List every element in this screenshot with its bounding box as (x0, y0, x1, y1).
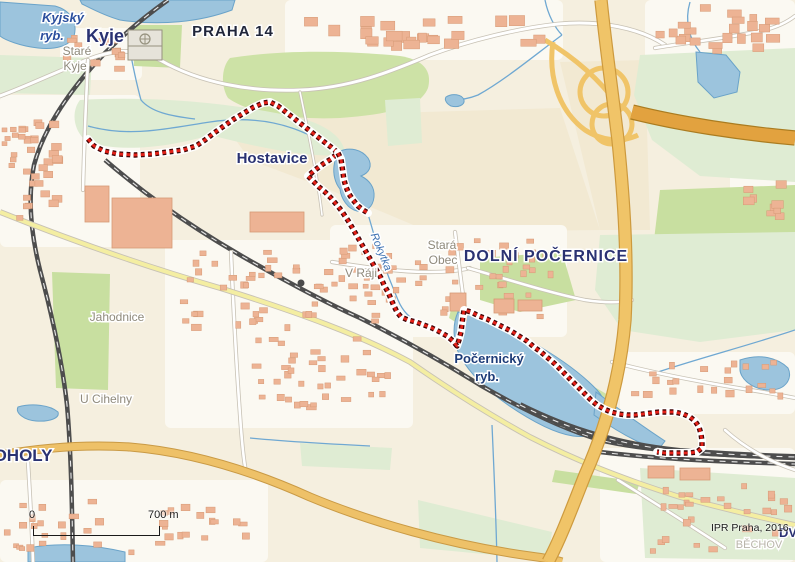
large-building (112, 198, 172, 248)
building (728, 10, 742, 18)
building (259, 273, 265, 278)
building (309, 361, 317, 365)
building (503, 266, 508, 272)
building (744, 509, 750, 514)
large-building (250, 212, 304, 232)
building (4, 530, 10, 536)
building (41, 191, 50, 197)
building (759, 24, 770, 32)
building (183, 319, 190, 324)
building (285, 397, 291, 402)
building (663, 487, 668, 494)
building (770, 389, 775, 393)
building (685, 502, 693, 506)
large-building (518, 300, 542, 311)
building (19, 134, 26, 139)
map-label: Kyje (86, 26, 124, 46)
scale-bar-distance-label: 700 m (148, 509, 179, 521)
building (20, 503, 27, 508)
building (725, 368, 731, 374)
building (780, 499, 788, 505)
building (381, 21, 395, 30)
building (746, 386, 752, 393)
building (416, 281, 423, 286)
building (242, 533, 249, 539)
building (332, 282, 338, 286)
building (264, 250, 272, 254)
building (187, 278, 193, 282)
building (294, 402, 300, 408)
building (452, 31, 464, 39)
map-label: Počernický (454, 351, 524, 366)
building (771, 360, 777, 365)
building (369, 392, 374, 397)
building (743, 364, 749, 370)
building (349, 284, 358, 289)
building (751, 33, 762, 42)
building (52, 156, 62, 163)
building (312, 302, 318, 307)
building (2, 142, 7, 146)
building (266, 265, 271, 271)
building (44, 171, 53, 177)
building (12, 133, 18, 138)
building (420, 276, 427, 280)
building (165, 534, 174, 540)
large-building (85, 186, 109, 222)
building (496, 274, 502, 279)
building (694, 543, 700, 547)
building (94, 542, 102, 547)
building (304, 17, 317, 26)
building (679, 493, 685, 498)
map-viewport[interactable]: KyjeKyjskýryb.StaréKyjePRAHA 14Hostavice… (0, 0, 795, 562)
building (758, 383, 766, 387)
building (159, 520, 168, 526)
building (631, 391, 639, 396)
building (11, 153, 17, 158)
building (724, 503, 731, 509)
building (701, 497, 710, 502)
building (69, 514, 79, 519)
building (523, 265, 530, 269)
building (2, 128, 7, 132)
building (448, 16, 462, 23)
building (44, 159, 53, 166)
building (325, 383, 331, 388)
building (766, 34, 780, 42)
building (521, 271, 527, 277)
building (278, 341, 285, 346)
building (420, 264, 428, 270)
map-label: Jahodnice (90, 310, 145, 324)
building (643, 391, 652, 397)
building (250, 319, 257, 325)
building (526, 293, 531, 297)
large-building (494, 299, 514, 313)
railway-junction-dot (298, 280, 305, 287)
building (233, 519, 240, 525)
building (499, 282, 507, 288)
building (243, 283, 248, 288)
building (367, 372, 374, 377)
building (474, 239, 480, 243)
building (676, 36, 686, 44)
building (393, 287, 399, 293)
building (548, 271, 553, 278)
building (277, 394, 284, 400)
building (731, 361, 737, 367)
building (685, 28, 697, 34)
scale-bar (33, 526, 160, 536)
building (765, 18, 779, 24)
large-building (648, 466, 674, 478)
building (229, 275, 237, 280)
map-attribution: IPR Praha, 2016 (711, 522, 789, 534)
building (669, 504, 678, 508)
building (10, 127, 16, 132)
building (778, 393, 783, 399)
building (768, 491, 774, 498)
building (39, 541, 46, 546)
building (724, 377, 732, 383)
building (372, 319, 379, 323)
building (17, 215, 23, 220)
building (212, 261, 218, 266)
building (776, 181, 786, 189)
building (9, 163, 15, 167)
building (39, 165, 48, 171)
building (260, 308, 268, 313)
building (339, 258, 346, 264)
building (5, 136, 10, 140)
building (341, 397, 351, 401)
building (441, 310, 448, 316)
building (88, 499, 97, 504)
building (324, 269, 333, 275)
building (180, 300, 188, 304)
building (27, 545, 34, 552)
building (772, 201, 784, 209)
building (290, 353, 297, 358)
building (686, 493, 693, 497)
building (311, 350, 321, 355)
building (366, 37, 379, 44)
building (337, 376, 346, 380)
map-label: ryb. (475, 369, 499, 384)
building (650, 372, 657, 376)
scale-bar-zero-label: 0 (29, 509, 35, 521)
building (700, 366, 707, 371)
building (743, 197, 754, 205)
building (361, 16, 375, 26)
building (774, 208, 781, 214)
building (669, 362, 674, 369)
building (181, 504, 190, 511)
map-label: ryb. (40, 28, 64, 43)
building (656, 31, 664, 38)
building (274, 379, 281, 384)
building (341, 356, 349, 363)
building (267, 258, 277, 263)
building (385, 373, 391, 379)
building (771, 510, 776, 515)
building (306, 311, 312, 317)
building (744, 186, 753, 192)
building (118, 52, 125, 57)
building (700, 5, 710, 12)
building (253, 311, 259, 317)
building (444, 39, 459, 49)
building (19, 127, 26, 132)
building (95, 518, 104, 525)
map-label: DOLNÍ POČERNICE (464, 246, 628, 265)
building (349, 245, 357, 251)
building (683, 519, 690, 526)
building (667, 380, 673, 384)
map-label: PRAHA 14 (192, 23, 274, 40)
building (529, 268, 535, 273)
building (753, 44, 764, 52)
building (353, 337, 361, 342)
building (10, 158, 16, 163)
building (363, 284, 368, 288)
building (476, 285, 483, 289)
map-label: Stará (428, 238, 457, 252)
building (30, 137, 38, 143)
building (717, 497, 724, 501)
building (737, 34, 745, 44)
building (729, 24, 739, 33)
building (319, 365, 326, 371)
building (220, 285, 227, 290)
building (380, 391, 386, 397)
building (670, 388, 677, 394)
map-label: Obec (429, 253, 458, 267)
building (763, 508, 771, 514)
large-building (680, 468, 710, 480)
building (200, 251, 206, 256)
map-label: V Ráji (345, 266, 377, 280)
map-label: OHOLY (0, 446, 53, 465)
building (404, 40, 420, 49)
building (527, 239, 534, 243)
building (258, 379, 263, 383)
building (155, 541, 165, 545)
building (192, 312, 198, 317)
building (202, 536, 208, 541)
building (372, 377, 379, 382)
building (193, 260, 199, 266)
building (372, 313, 380, 317)
building (339, 276, 345, 282)
building (709, 43, 722, 49)
map-label: U Cihelny (80, 392, 132, 406)
building (698, 386, 703, 393)
building (678, 505, 684, 510)
building (711, 387, 716, 393)
building (246, 276, 255, 280)
building (206, 507, 215, 513)
building (274, 273, 282, 278)
building (509, 16, 524, 26)
building (653, 377, 660, 384)
building (397, 278, 406, 283)
map-label: Kyje (63, 59, 87, 73)
building (269, 337, 278, 341)
building (318, 384, 323, 389)
green-area (385, 98, 422, 146)
building (67, 38, 76, 42)
building (386, 31, 402, 41)
building (49, 200, 59, 207)
building (496, 16, 507, 27)
building (322, 394, 328, 400)
building (452, 280, 458, 284)
building (115, 66, 125, 71)
building (690, 38, 700, 45)
building (650, 549, 655, 554)
building (256, 338, 262, 343)
building (293, 265, 299, 269)
building (27, 147, 35, 153)
building (241, 303, 250, 309)
building (236, 322, 241, 329)
building (211, 520, 219, 524)
building (423, 19, 435, 26)
building (195, 269, 201, 275)
building (23, 195, 30, 200)
building (428, 36, 440, 44)
building (288, 368, 294, 374)
building (19, 547, 25, 551)
building (289, 358, 296, 363)
building (365, 292, 372, 297)
building (91, 60, 101, 66)
building (300, 401, 308, 407)
building (259, 395, 265, 399)
building (521, 39, 536, 46)
building (340, 248, 347, 254)
building (311, 403, 317, 407)
building (742, 484, 747, 489)
building (350, 296, 356, 301)
building (371, 285, 380, 290)
building (197, 512, 204, 518)
building (662, 536, 669, 542)
building (285, 325, 290, 331)
building (723, 33, 732, 43)
building (537, 314, 544, 319)
building (669, 29, 677, 37)
map-label: Hostavice (237, 150, 308, 167)
building (35, 181, 43, 187)
building (446, 267, 454, 273)
building (318, 357, 326, 361)
building (732, 17, 744, 24)
map-label: BĚCHOV (736, 538, 783, 551)
building (762, 364, 769, 369)
building (23, 204, 30, 209)
building (368, 300, 376, 304)
building (504, 293, 513, 298)
building (36, 123, 44, 129)
building (726, 390, 735, 397)
building (23, 169, 30, 174)
building (329, 25, 340, 36)
building (661, 504, 666, 511)
map-label: Staré (63, 44, 92, 58)
building (299, 381, 304, 386)
building (415, 261, 421, 265)
building (182, 532, 189, 537)
map-canvas: KyjeKyjskýryb.StaréKyjePRAHA 14Hostavice… (0, 0, 795, 562)
building (252, 364, 261, 369)
building (39, 504, 46, 510)
building (129, 550, 134, 555)
building (678, 22, 690, 28)
building (363, 350, 371, 355)
building (31, 174, 39, 180)
building (191, 324, 201, 330)
building (357, 369, 366, 375)
building (490, 274, 496, 279)
building (673, 379, 679, 385)
building (748, 21, 758, 31)
building (19, 522, 27, 528)
building (49, 121, 59, 128)
building (784, 505, 791, 512)
building (52, 143, 62, 150)
building (709, 547, 718, 552)
building (314, 284, 323, 289)
map-label: Kyjský (42, 10, 85, 25)
